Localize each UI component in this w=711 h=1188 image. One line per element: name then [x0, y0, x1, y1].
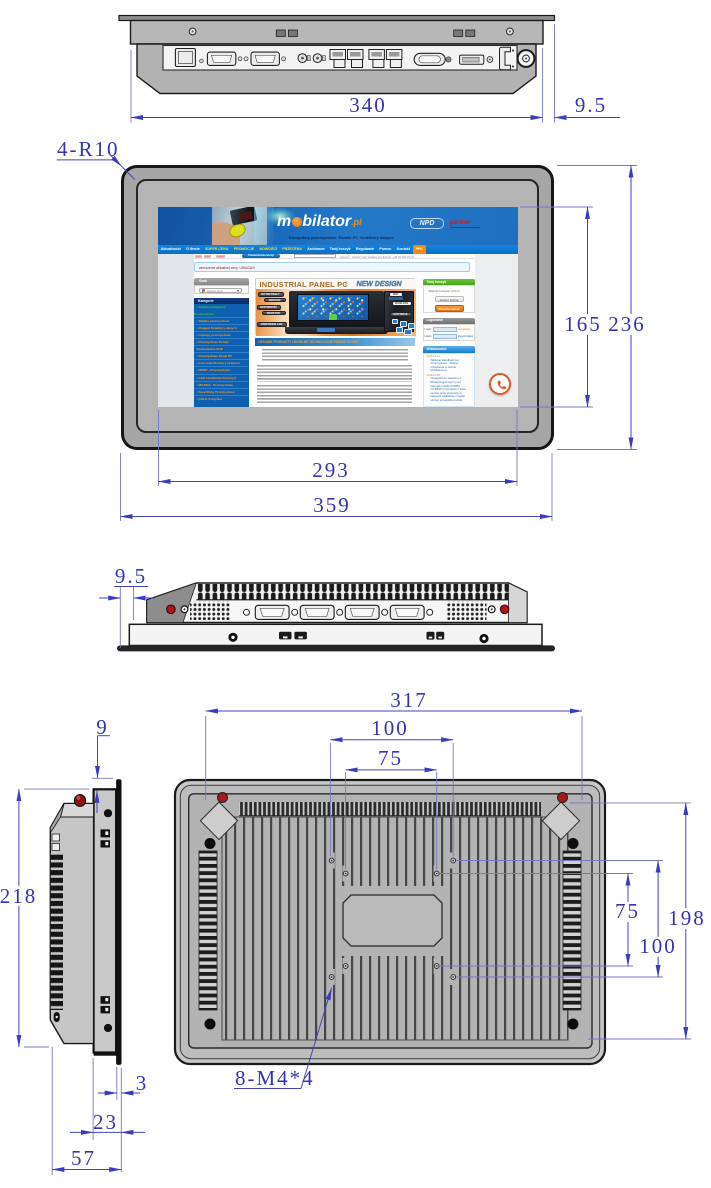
svg-text:23: 23 — [93, 1110, 118, 1134]
svg-text:340: 340 — [349, 93, 387, 117]
svg-text:3: 3 — [136, 1071, 149, 1095]
svg-text:75: 75 — [378, 746, 403, 770]
svg-text:4-R10: 4-R10 — [57, 137, 120, 161]
svg-text:165: 165 — [564, 312, 602, 336]
svg-text:293: 293 — [312, 458, 350, 482]
svg-text:236: 236 — [608, 312, 646, 336]
svg-text:100: 100 — [639, 934, 677, 958]
svg-text:317: 317 — [390, 688, 428, 712]
svg-text:359: 359 — [313, 493, 351, 517]
svg-text:198: 198 — [668, 906, 706, 930]
svg-text:9.5: 9.5 — [575, 93, 607, 117]
svg-text:8-M4*4: 8-M4*4 — [235, 1066, 315, 1090]
svg-text:100: 100 — [371, 716, 409, 740]
svg-text:218: 218 — [0, 884, 37, 908]
svg-text:9.5: 9.5 — [115, 564, 147, 588]
svg-text:75: 75 — [615, 899, 640, 923]
svg-text:57: 57 — [71, 1146, 96, 1170]
